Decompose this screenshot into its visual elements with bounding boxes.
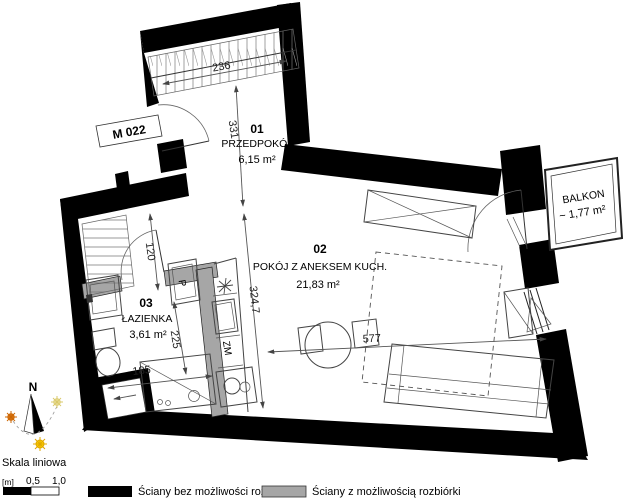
room-02-area: 21,83 m²	[296, 279, 340, 291]
cooktop-icon	[217, 278, 233, 294]
foldout-bed	[362, 252, 502, 396]
wall-bottom	[82, 408, 588, 460]
scale-segment-white	[31, 487, 59, 495]
dim-577: 577	[362, 333, 381, 346]
dim-line-577	[268, 339, 546, 352]
compass: N	[5, 380, 63, 451]
scale-bar: Skala liniowa [m] 0,5 1,0	[2, 457, 67, 495]
washing-machine-label: P	[176, 279, 188, 288]
scale-title: Skala liniowa	[2, 457, 67, 469]
room-02-number: 02	[313, 242, 327, 256]
sun-icon-west	[5, 411, 17, 423]
room-01-name: PRZEDPOKÓJ	[221, 137, 292, 150]
north-label: N	[29, 380, 38, 394]
wardrobe	[364, 190, 476, 238]
dim-324-7: 324,7	[247, 285, 262, 314]
wall-legend: Ściany bez możliwości rozbiórki Ściany z…	[88, 485, 461, 498]
unit-label: M 022	[96, 115, 162, 147]
legend-removable-label: Ściany z możliwością rozbiórki	[312, 485, 461, 498]
kitchen-sink-label: ZM	[220, 340, 233, 356]
sun-icon-south	[33, 437, 47, 451]
room-03-area: 3,61 m²	[129, 329, 167, 341]
floorplan-drawing: BALKON ~ 1,77 m² P	[0, 0, 628, 500]
sun-icon-east	[51, 396, 63, 408]
wall-balcony-corner	[500, 145, 546, 215]
dimensions: 236 331 324,7 120 225 185 577	[108, 59, 546, 408]
alcove-shelf	[82, 215, 134, 295]
dim-120: 120	[143, 242, 157, 262]
room-01-number: 01	[250, 122, 264, 136]
room-03-name: ŁAZIENKA	[122, 313, 173, 325]
balcony-outer-rail	[545, 158, 622, 250]
wall-room-top	[281, 144, 502, 196]
sofa	[384, 344, 554, 418]
doors	[121, 105, 549, 334]
floorplan-page: BALKON ~ 1,77 m² P	[0, 0, 628, 500]
living-furniture	[298, 190, 554, 418]
scale-tick-10: 1,0	[52, 476, 66, 487]
room-03-number: 03	[139, 296, 153, 310]
room-03-label: 03 ŁAZIENKA 3,61 m²	[122, 296, 173, 341]
legend-swatch-solid	[88, 486, 132, 497]
legend-swatch-removable	[262, 486, 306, 497]
room-labels: 01 PRZEDPOKÓJ 6,15 m² 02 POKÓJ Z ANEKSEM…	[96, 115, 387, 341]
dim-225: 225	[168, 330, 183, 350]
room-02-name: POKÓJ Z ANEKSEM KUCH.	[253, 260, 387, 273]
balcony: BALKON ~ 1,77 m²	[545, 158, 622, 250]
scale-segment-black	[3, 487, 31, 495]
scale-unit: [m]	[2, 477, 14, 487]
wall-entry-block	[157, 139, 187, 173]
wall-hall-right	[277, 2, 310, 146]
room-01-area: 6,15 m²	[238, 154, 276, 166]
dim-331: 331	[226, 120, 241, 140]
room-02-label: 02 POKÓJ Z ANEKSEM KUCH. 21,83 m²	[253, 242, 387, 291]
scale-tick-05: 0,5	[26, 476, 40, 487]
dim-185: 185	[132, 364, 152, 378]
